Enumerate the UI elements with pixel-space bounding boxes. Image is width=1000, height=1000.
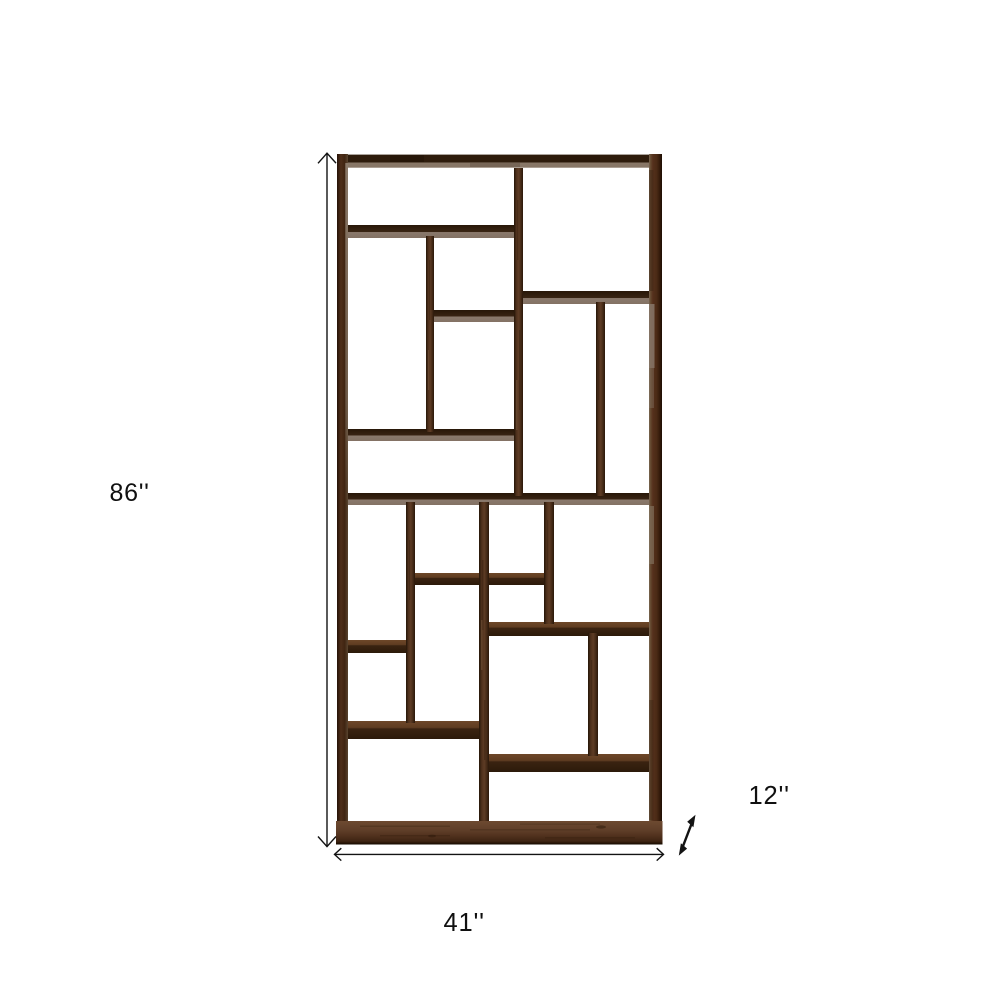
svg-text:41'': 41'': [444, 909, 485, 937]
svg-text:86'': 86'': [110, 479, 150, 507]
svg-text:12'': 12'': [749, 782, 790, 810]
